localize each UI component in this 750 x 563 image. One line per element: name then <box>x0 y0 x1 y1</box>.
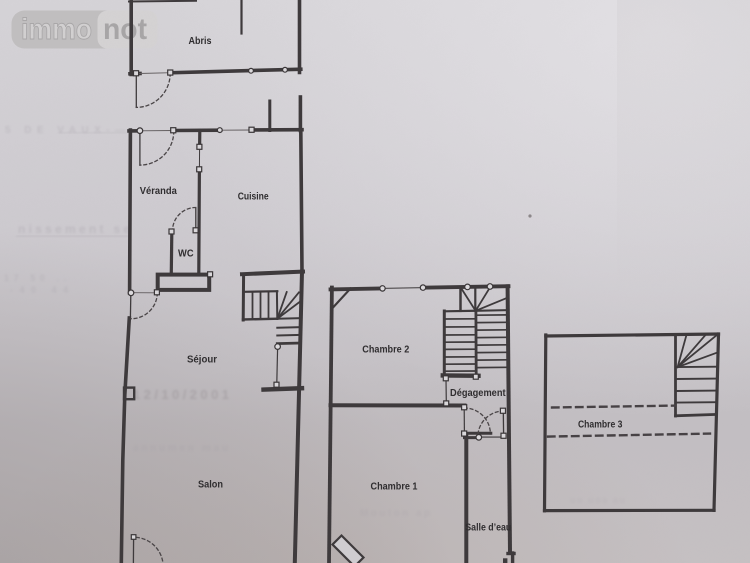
svg-text:Véranda: Véranda <box>140 185 177 197</box>
svg-text:Dégagement: Dégagement <box>450 387 506 399</box>
svg-text:Chambre 1: Chambre 1 <box>371 481 418 493</box>
svg-text:WC: WC <box>178 248 194 260</box>
svg-text:Chambre 2: Chambre 2 <box>362 344 409 356</box>
svg-text:Cuisine: Cuisine <box>238 190 269 202</box>
svg-text:Séjour: Séjour <box>187 354 217 366</box>
svg-text:Chambre 3: Chambre 3 <box>578 418 623 430</box>
svg-text:Salle d’eau: Salle d’eau <box>465 522 511 534</box>
svg-text:Abris: Abris <box>189 35 212 47</box>
svg-text:Salon: Salon <box>198 479 223 491</box>
